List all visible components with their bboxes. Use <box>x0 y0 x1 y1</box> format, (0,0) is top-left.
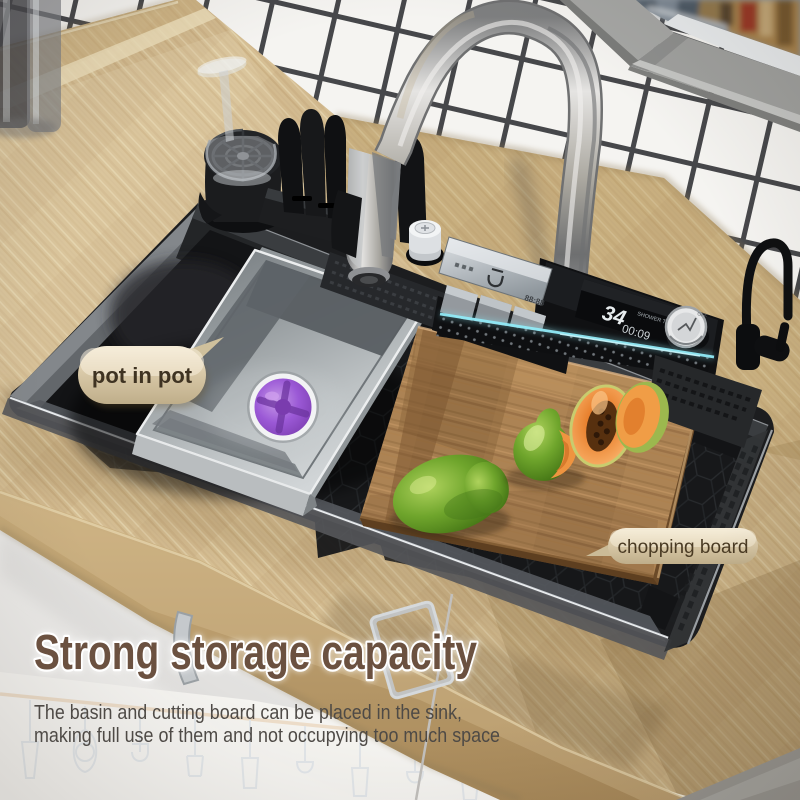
svg-text:Strong storage capacity: Strong storage capacity <box>34 626 477 680</box>
svg-text:The basin and cutting board ca: The basin and cutting board can be place… <box>34 702 462 724</box>
svg-text:making full use of them and no: making full use of them and not occupyin… <box>34 725 500 747</box>
